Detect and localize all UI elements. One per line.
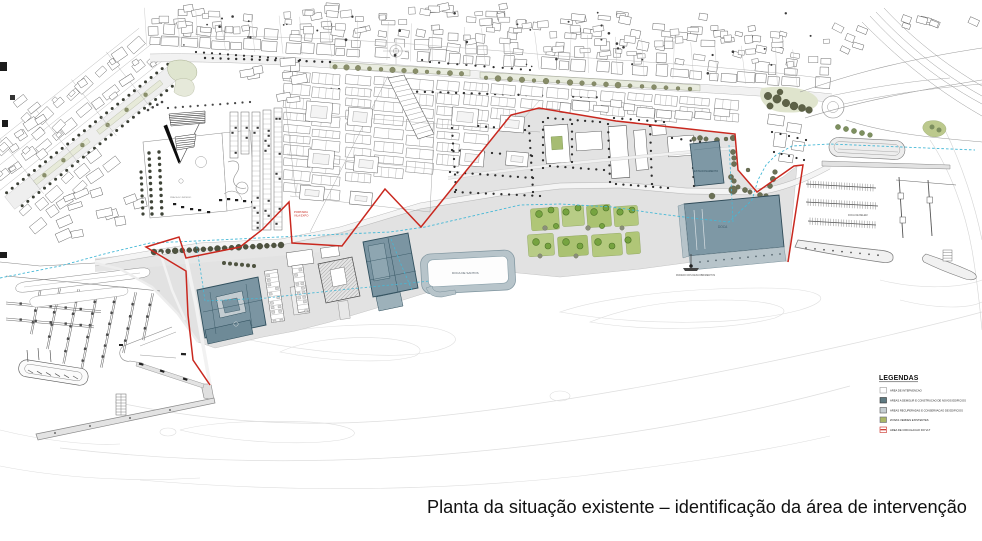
svg-text:AREAS RECUPERADAS E CONSERVACA: AREAS RECUPERADAS E CONSERVACAO DE EDIFI…	[890, 409, 963, 413]
svg-text:VILA EXPO: VILA EXPO	[294, 214, 309, 218]
svg-text:DOCA: DOCA	[718, 225, 728, 229]
svg-text:ESTACIONAMENTO: ESTACIONAMENTO	[694, 169, 718, 173]
svg-text:PADRAO DOS DESCOBRIMENTOS: PADRAO DOS DESCOBRIMENTOS	[676, 274, 716, 277]
svg-text:DOCA DE SANTOS: DOCA DE SANTOS	[452, 271, 479, 275]
svg-text:LEGENDAS: LEGENDAS	[879, 375, 919, 382]
svg-text:AREA DE INTERVENCAO: AREA DE INTERVENCAO	[890, 389, 922, 393]
svg-text:DOCA DE BELEM: DOCA DE BELEM	[848, 214, 868, 217]
svg-text:PRACA DO IMPERIO: PRACA DO IMPERIO	[170, 196, 191, 199]
svg-text:AREAS A DEMOLIR E CONSTRUCAO D: AREAS A DEMOLIR E CONSTRUCAO DE NOVOS ED…	[890, 399, 966, 403]
svg-text:AREA DE CIRCULACAO DO VLT: AREA DE CIRCULACAO DO VLT	[890, 428, 931, 432]
svg-text:Planta da situação existente –: Planta da situação existente – identific…	[427, 497, 967, 517]
svg-text:ZONAS VERDES EXISTENTES: ZONAS VERDES EXISTENTES	[890, 418, 929, 422]
